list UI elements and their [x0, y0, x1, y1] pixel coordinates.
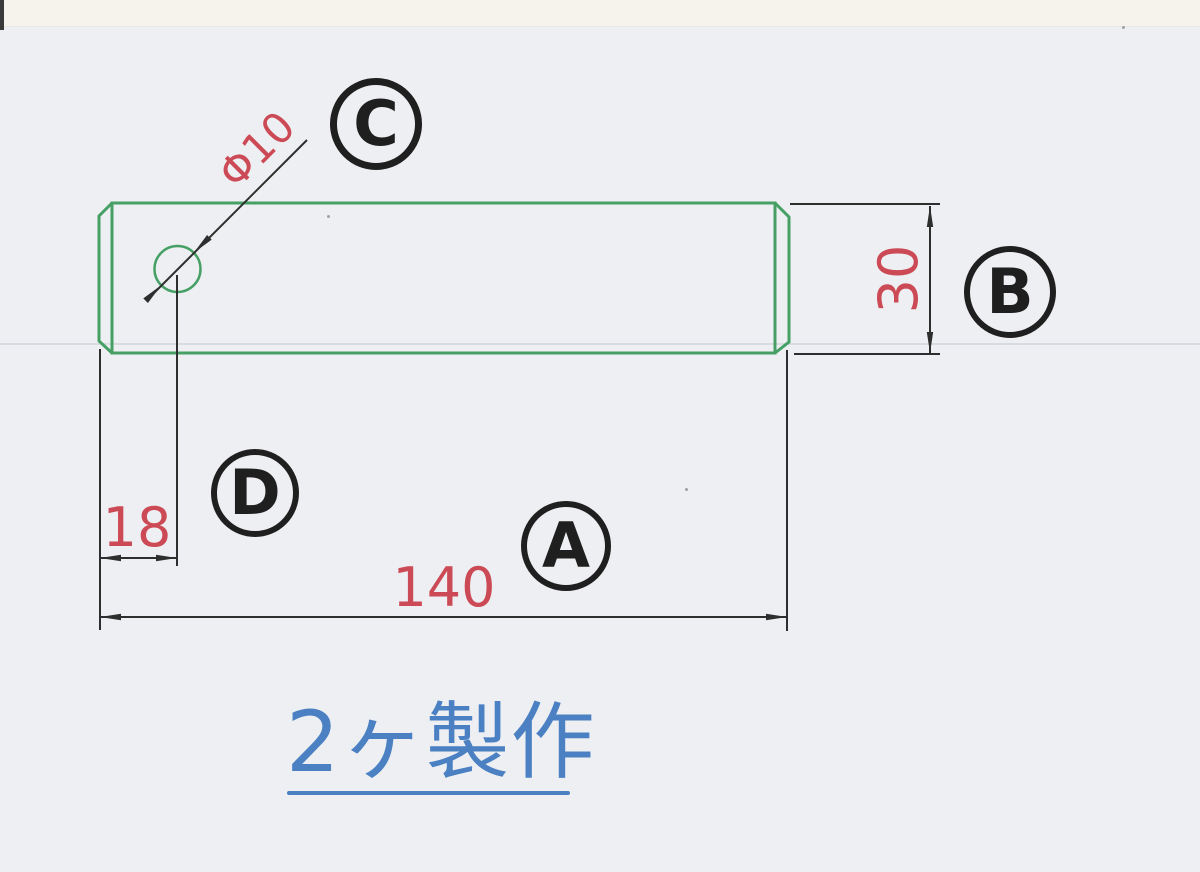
part-outline [99, 203, 789, 353]
scanned-drawing-page: Φ10 30 18 140 C B D A 2ヶ製作 [0, 0, 1200, 872]
drawing-canvas [0, 0, 1200, 872]
dimension-length: 140 [372, 562, 516, 614]
balloon-label-c: C [330, 78, 422, 170]
balloon-label-b: B [964, 246, 1056, 338]
dimension-height: 30 [872, 229, 926, 329]
dimension-hole-offset: 18 [95, 502, 179, 554]
balloon-label-d: D [211, 449, 299, 537]
balloon-label-a: A [521, 501, 611, 591]
production-note: 2ヶ製作 [286, 696, 595, 788]
note-underline [287, 791, 570, 795]
leader-arrow-upper [194, 235, 212, 253]
scan-speck [1122, 26, 1125, 29]
leader-arrow-lower [143, 285, 161, 303]
scan-speck [685, 488, 688, 491]
scan-speck [327, 215, 330, 218]
dimension-lines [100, 140, 940, 631]
